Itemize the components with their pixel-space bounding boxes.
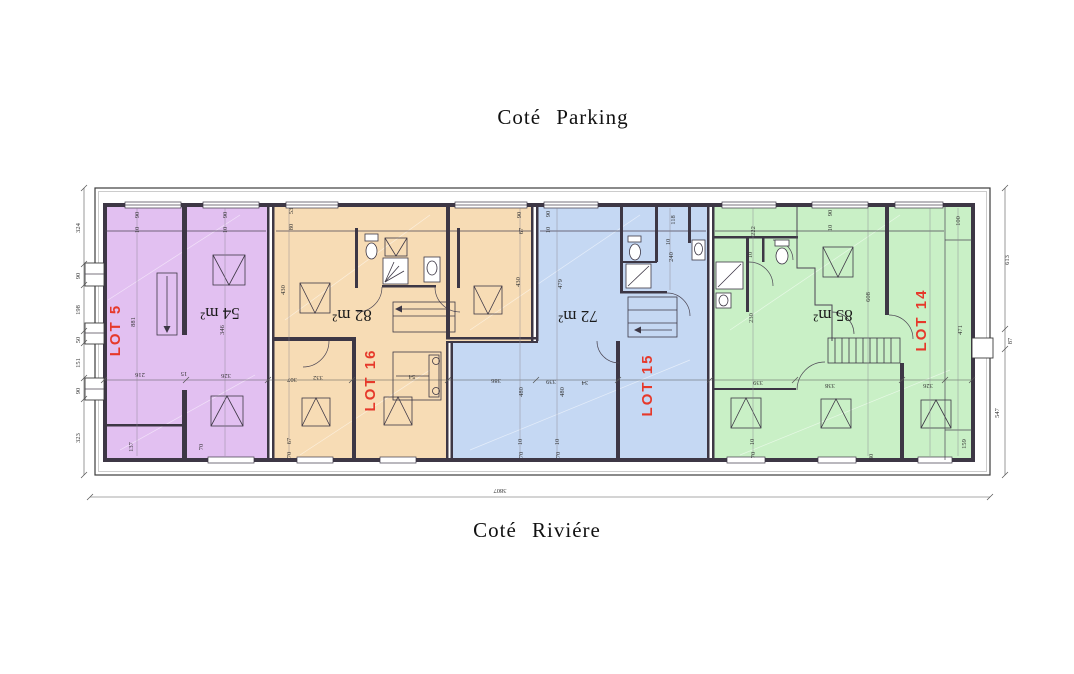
- floor-plan-drawing: Coté Parking Coté Riviére: [0, 0, 1074, 674]
- dim: 240: [668, 252, 675, 262]
- dim: 70: [555, 452, 562, 459]
- dim: 70: [198, 444, 205, 451]
- dim-left-3: 198: [75, 305, 82, 315]
- dim: 479: [557, 279, 564, 289]
- dim-left-6: 90: [75, 388, 82, 395]
- dim: 10: [665, 239, 672, 246]
- dim: 90: [134, 212, 141, 219]
- dim: 10: [554, 439, 561, 446]
- dim: 10: [517, 439, 524, 446]
- dim: 430: [280, 285, 287, 295]
- dim: 15: [181, 370, 188, 377]
- dim: 332: [313, 374, 323, 381]
- dim: 10: [827, 225, 834, 232]
- dim: 90: [545, 211, 552, 218]
- dim: 90: [827, 210, 834, 217]
- dim: 881: [130, 317, 137, 327]
- dim: 70: [286, 452, 293, 459]
- dim: 10: [545, 227, 552, 234]
- sink-icon: [692, 240, 705, 260]
- dim-right-3: 547: [994, 407, 1001, 418]
- dim: 338: [825, 382, 835, 389]
- shower-icon: [626, 264, 651, 288]
- dim: 100: [955, 216, 962, 226]
- right-facade-notch: [972, 338, 993, 358]
- dim: 10: [747, 252, 754, 259]
- dim: 307: [286, 376, 297, 383]
- shower-icon: [716, 262, 743, 289]
- dim: 90: [222, 212, 229, 219]
- toilet-icon: [775, 240, 789, 264]
- lot15-area: 72 m²: [558, 307, 598, 326]
- dim: 67: [518, 227, 525, 234]
- dim: 608: [865, 292, 872, 302]
- dim: 430: [515, 277, 522, 287]
- dim: 70: [750, 452, 757, 459]
- dim-left-2: 90: [75, 273, 82, 280]
- dim: 216: [134, 371, 145, 378]
- sink-icon: [716, 293, 731, 308]
- lot5-label: LOT 5: [107, 304, 124, 357]
- dim: 118: [670, 215, 677, 225]
- dim: 480: [518, 387, 525, 397]
- dimension-chain-right: 613 87 547: [994, 185, 1014, 478]
- dim: 346: [219, 324, 226, 335]
- lot16-label: LOT 16: [362, 349, 379, 412]
- dim: 70: [518, 452, 525, 459]
- dim: 159: [961, 439, 968, 449]
- dim: 34: [581, 379, 588, 386]
- lot14-area: 85 m²: [813, 306, 853, 325]
- dim: 80: [288, 224, 295, 231]
- dim-left-4: 50: [75, 337, 82, 344]
- dim: 326: [922, 382, 933, 389]
- dim: 339: [753, 379, 763, 386]
- sink-icon: [424, 257, 440, 282]
- lot16-area: 82 m²: [332, 306, 372, 325]
- title-cote-parking: Coté Parking: [497, 105, 628, 129]
- dim: 67: [286, 437, 293, 444]
- lot14-region: [713, 203, 972, 462]
- dim: 80: [868, 454, 875, 461]
- dim: 339: [546, 378, 556, 385]
- dim: 53: [288, 208, 295, 215]
- dim: 137: [128, 441, 135, 452]
- dim-right-1: 613: [1004, 255, 1011, 265]
- dim: 480: [559, 387, 566, 397]
- dim-left-5: 151: [75, 358, 82, 368]
- dim: 222: [750, 226, 757, 236]
- dim: 471: [957, 325, 964, 335]
- toilet-icon: [365, 234, 378, 259]
- dim: 10: [134, 227, 141, 234]
- dim-total-width: 3807: [493, 487, 507, 494]
- dim: 230: [748, 313, 755, 323]
- shower-icon: [383, 258, 408, 284]
- dim: 10: [749, 439, 756, 446]
- dim-right-2: 87: [1007, 337, 1014, 344]
- dim-left-7: 323: [75, 433, 82, 443]
- title-cote-riviere: Coté Riviére: [473, 518, 601, 542]
- dim: 54: [408, 373, 415, 380]
- dim: 386: [490, 377, 501, 384]
- dim-left-1: 324: [75, 222, 82, 233]
- floor-plan-page: Coté Parking Coté Riviére: [0, 0, 1074, 674]
- lot15-label: LOT 15: [639, 354, 656, 417]
- dimension-chain-bottom: 3807: [87, 487, 993, 500]
- lot14-label: LOT 14: [913, 289, 930, 352]
- lot5-area: 54 m²: [200, 304, 240, 323]
- dim: 90: [516, 212, 523, 219]
- dim: 10: [222, 227, 229, 234]
- dim: 326: [220, 372, 231, 379]
